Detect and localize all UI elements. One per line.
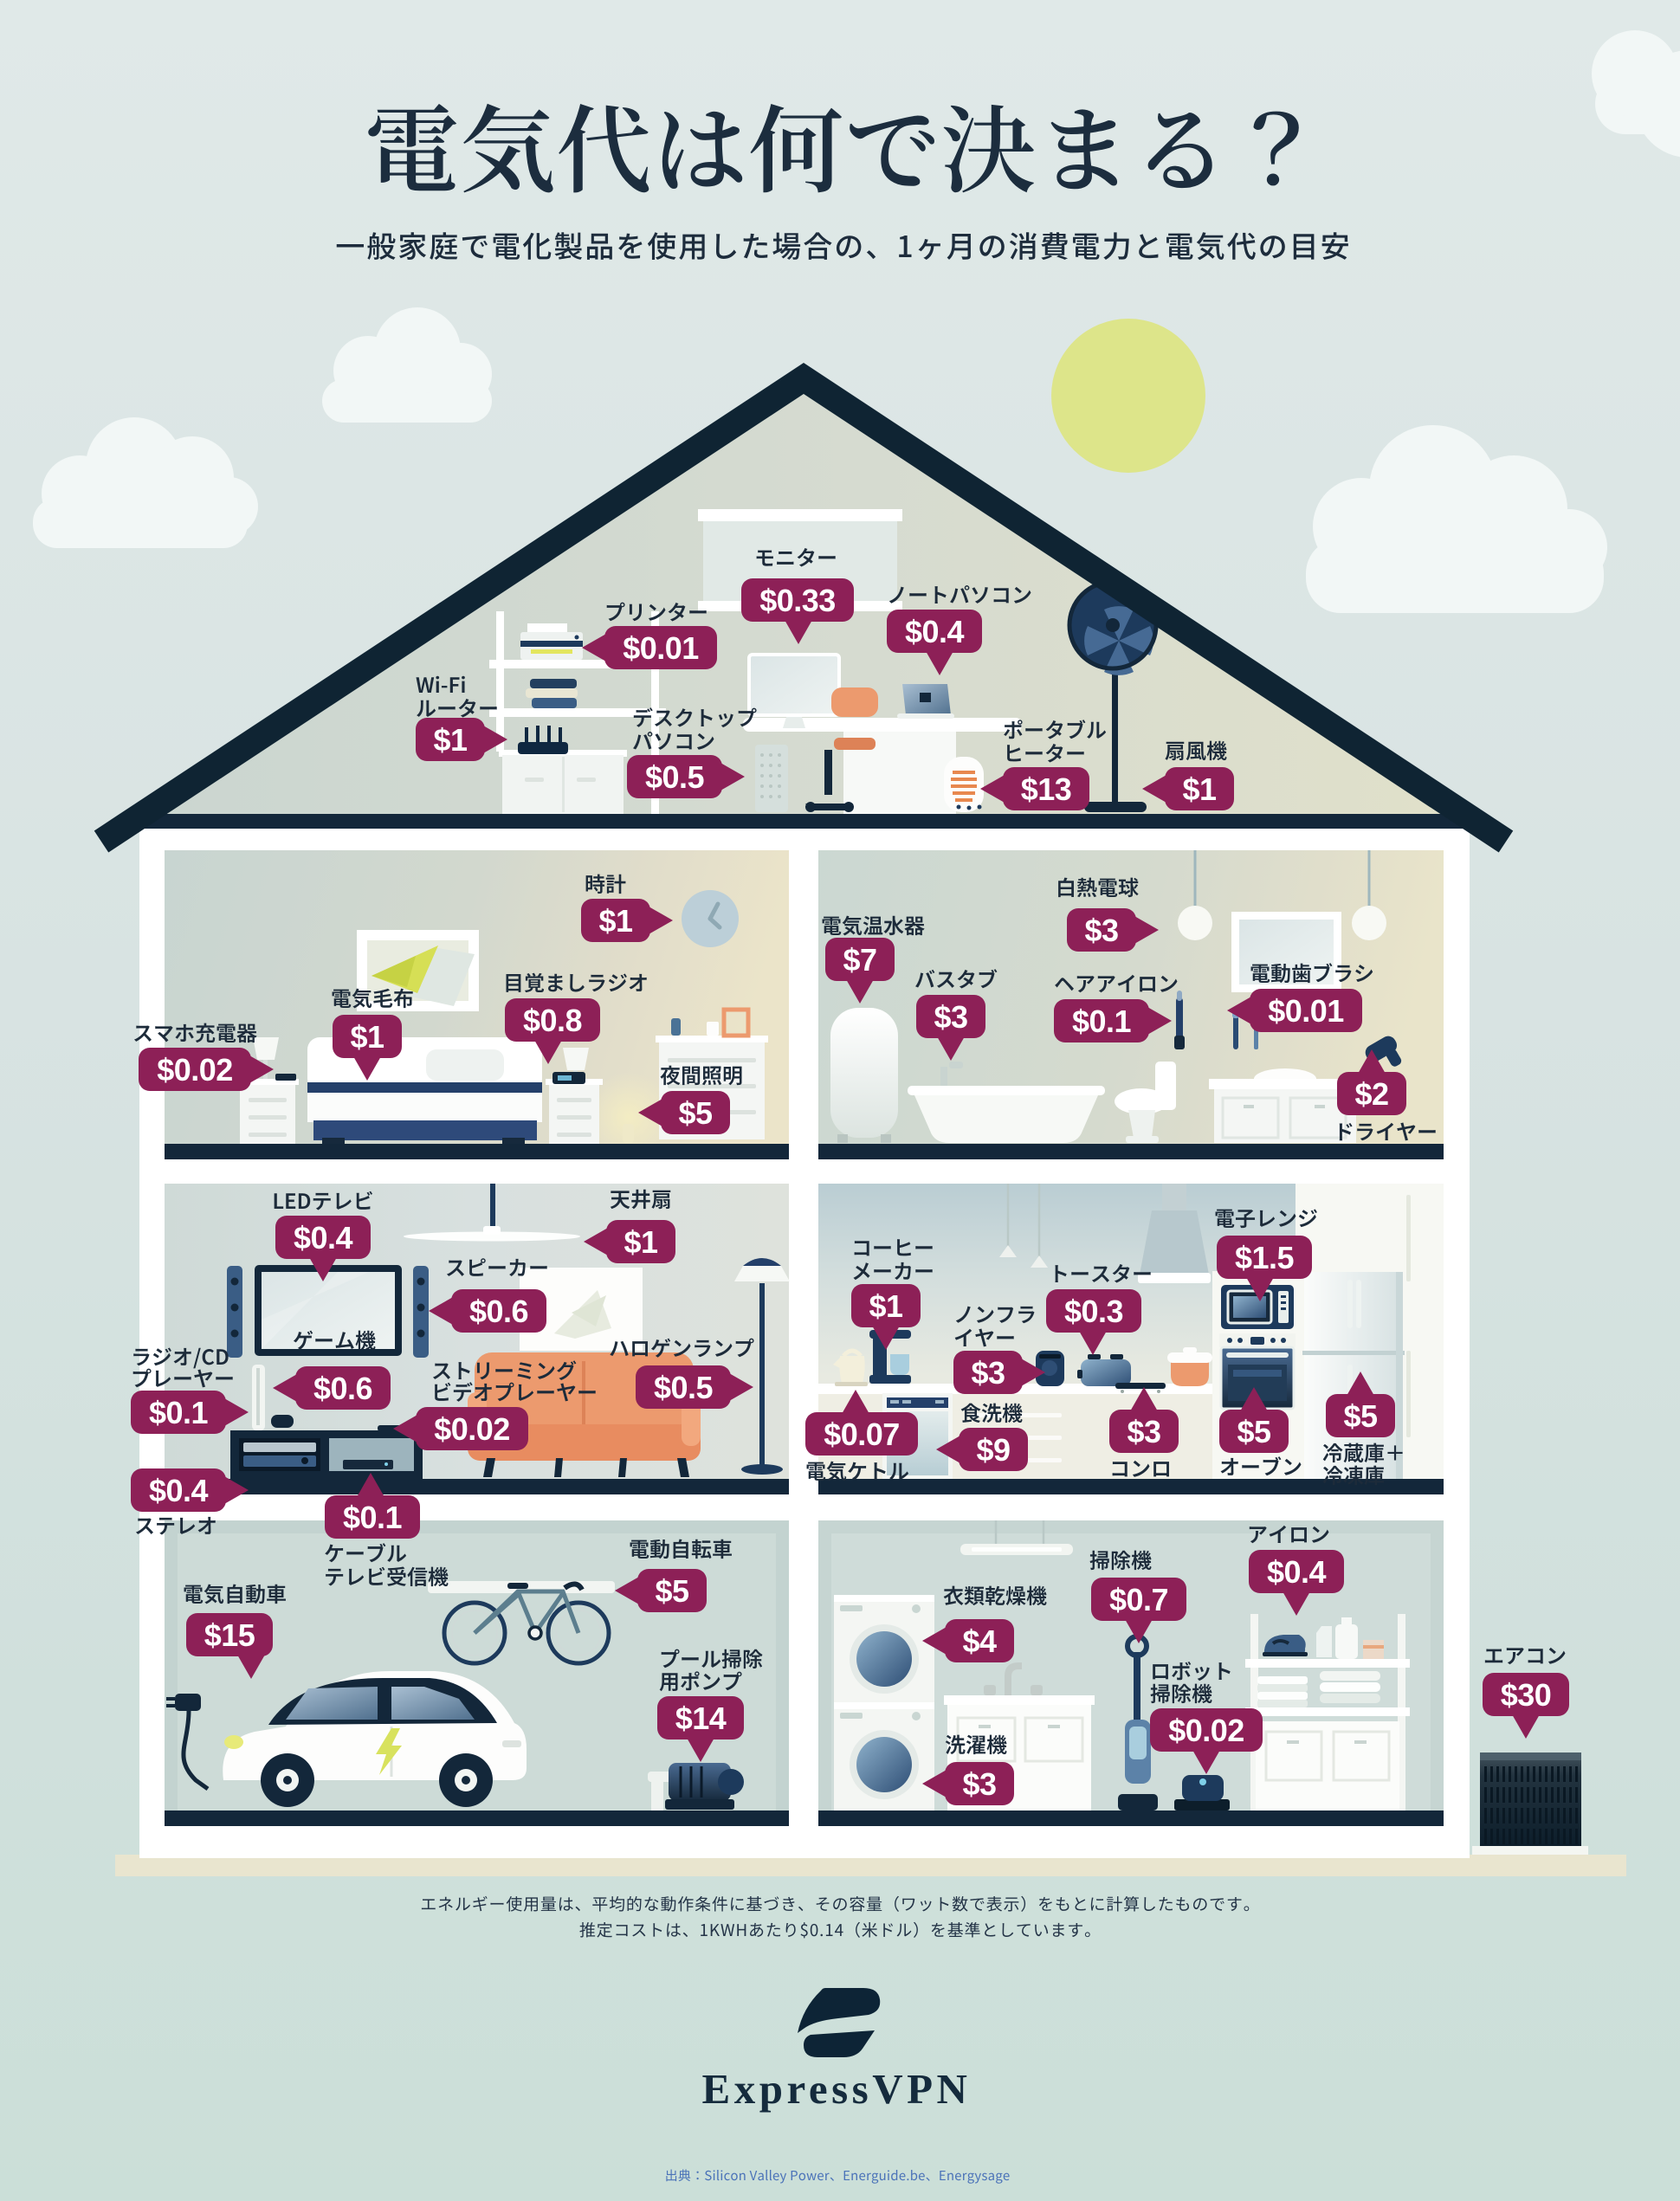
svg-text:$9: $9: [976, 1432, 1010, 1468]
svg-text:$0.4: $0.4: [1267, 1554, 1327, 1590]
svg-text:$0.02: $0.02: [157, 1052, 233, 1088]
svg-text:$1.5: $1.5: [1235, 1240, 1295, 1275]
svg-text:$3: $3: [1127, 1414, 1160, 1449]
svg-text:$0.5: $0.5: [654, 1370, 714, 1405]
svg-text:$5: $5: [655, 1573, 689, 1609]
svg-text:$0.4: $0.4: [905, 614, 965, 649]
svg-text:$13: $13: [1021, 771, 1072, 807]
svg-text:$0.6: $0.6: [313, 1371, 372, 1406]
svg-text:$1: $1: [598, 903, 633, 939]
svg-text:$0.4: $0.4: [294, 1220, 353, 1255]
svg-text:$14: $14: [675, 1701, 727, 1736]
svg-text:$2: $2: [1354, 1076, 1388, 1112]
svg-text:$0.01: $0.01: [1268, 993, 1344, 1029]
svg-text:$0.02: $0.02: [1168, 1713, 1244, 1748]
svg-text:$3: $3: [971, 1355, 1005, 1391]
svg-text:$15: $15: [204, 1617, 255, 1653]
svg-text:$0.01: $0.01: [623, 630, 699, 666]
svg-text:$30: $30: [1501, 1677, 1552, 1713]
svg-text:$0.07: $0.07: [824, 1417, 900, 1452]
svg-text:$0.1: $0.1: [343, 1500, 403, 1535]
svg-text:$0.1: $0.1: [149, 1395, 209, 1430]
svg-text:$1: $1: [869, 1288, 903, 1324]
svg-text:$3: $3: [1084, 913, 1118, 948]
svg-text:$0.6: $0.6: [469, 1294, 528, 1329]
svg-text:$0.7: $0.7: [1109, 1582, 1168, 1617]
svg-text:$5: $5: [1237, 1414, 1271, 1449]
svg-text:$1: $1: [1182, 771, 1217, 807]
svg-text:$4: $4: [962, 1623, 997, 1659]
svg-text:$5: $5: [1343, 1398, 1378, 1434]
svg-text:$1: $1: [433, 722, 468, 758]
svg-text:$0.5: $0.5: [645, 759, 705, 795]
svg-text:$0.8: $0.8: [523, 1003, 582, 1038]
svg-text:$5: $5: [678, 1095, 713, 1131]
svg-text:$7: $7: [843, 942, 876, 978]
svg-text:$0.1: $0.1: [1072, 1004, 1132, 1039]
svg-text:$0.3: $0.3: [1064, 1294, 1123, 1329]
svg-text:ExpressVPN: ExpressVPN: [702, 2065, 972, 2113]
svg-text:$3: $3: [934, 999, 967, 1035]
svg-text:$0.33: $0.33: [759, 583, 836, 618]
svg-text:$0.4: $0.4: [149, 1473, 209, 1508]
svg-text:$1: $1: [350, 1019, 384, 1055]
svg-text:$0.02: $0.02: [434, 1411, 510, 1447]
svg-text:$1: $1: [624, 1224, 658, 1260]
svg-text:$3: $3: [962, 1766, 996, 1802]
